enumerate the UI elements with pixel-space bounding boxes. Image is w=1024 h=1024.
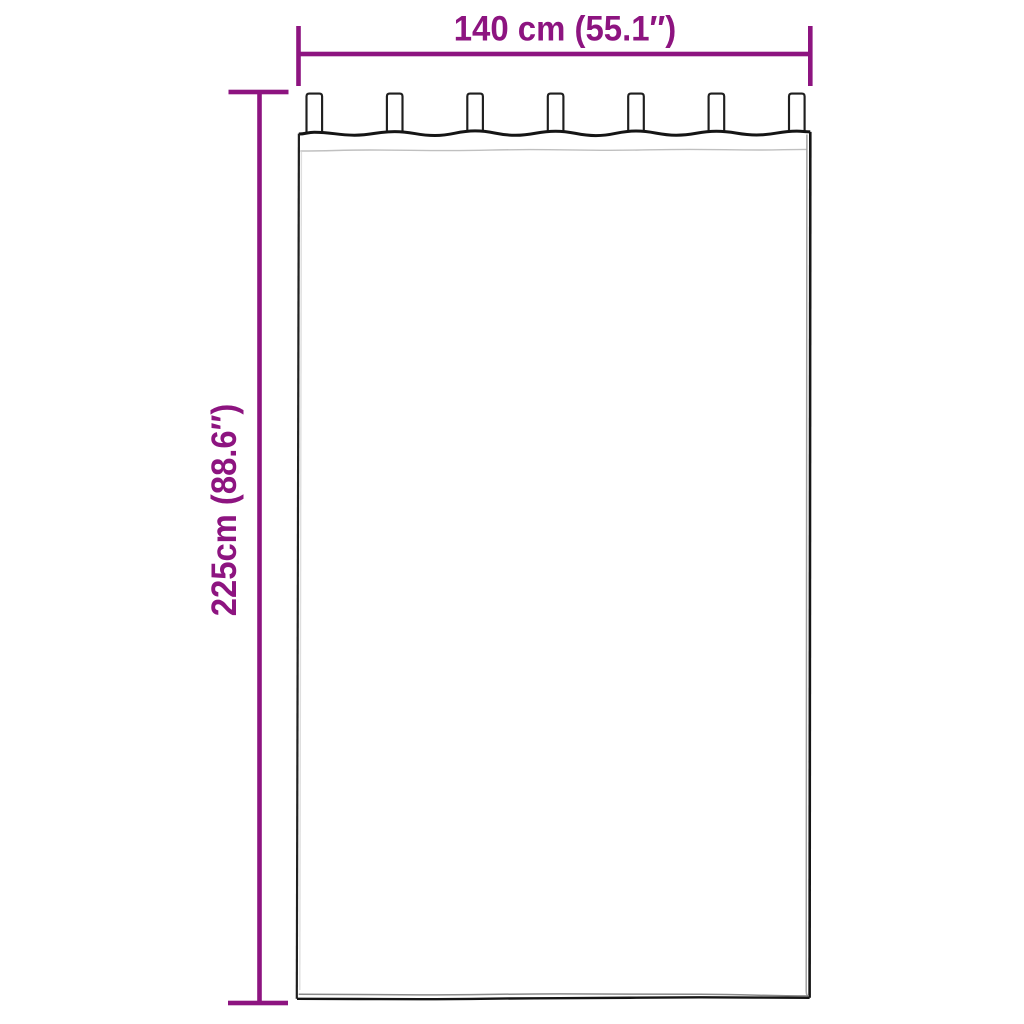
svg-text:225cm (88.6″): 225cm (88.6″): [205, 404, 244, 617]
svg-text:140 cm (55.1″): 140 cm (55.1″): [454, 10, 677, 49]
